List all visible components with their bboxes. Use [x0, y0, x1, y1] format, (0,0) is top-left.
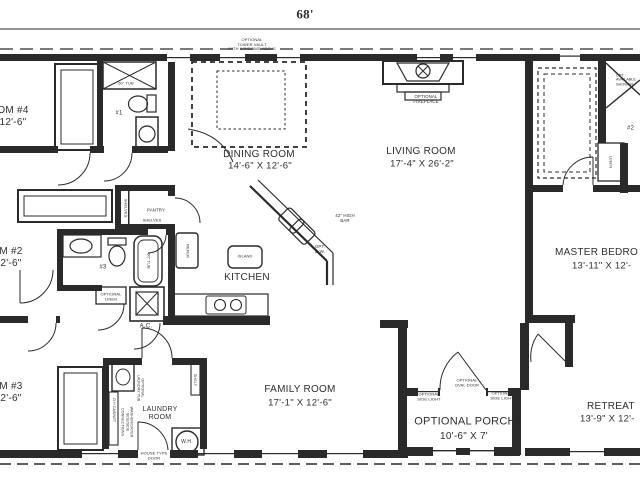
dining-vault-outline [192, 62, 306, 147]
bath3-toilet [108, 238, 126, 266]
bedroom4-closet [55, 64, 99, 150]
label-island: ISLAND [237, 255, 252, 260]
dims-family-room: 17'-1" X 12'-6" [268, 397, 332, 408]
ac-closet [130, 287, 164, 321]
label-bath2: #2 [627, 125, 634, 132]
bar-note: 42" HIGH BAR [335, 213, 354, 223]
label-oh-cabinet: O.H CABINET [112, 398, 116, 422]
fireplace-note: OPTIONAL FIREPLACE [413, 94, 438, 104]
label-kitchen: KITCHEN [224, 272, 270, 284]
dims-master-bedroom: 13'-11" X 12'- [572, 260, 631, 271]
label-laundry-room: LAUNDRY ROOM [142, 406, 177, 423]
label-retreat: RETREAT [587, 401, 635, 413]
dining-tray-outline [217, 71, 285, 129]
label-tub1: 60" TUB [118, 82, 134, 87]
dims-dining-room: 14'-6" X 12'-6" [228, 160, 292, 171]
bath1-shower [136, 117, 158, 149]
label-family-room: FAMILY ROOM [264, 384, 335, 396]
label-bedroom4: OM #4 12'-6" [0, 105, 29, 129]
bar-sink [278, 207, 317, 246]
label-refrigerator: REFER [185, 244, 190, 258]
label-shelves-side: SHELVES [123, 199, 128, 218]
label-porch: OPTIONAL PORCH [414, 416, 516, 429]
label-linen: LINEN [608, 156, 613, 168]
label-bath1: #1 [115, 110, 122, 117]
dims-porch: 10'-6" X 7' [440, 431, 488, 443]
label-laundry-tub: OPTIONAL LAUNDRY TUB [136, 375, 145, 402]
label-shelves-bottom: SHELVES [143, 219, 162, 224]
side-light-left-note: OPTIONAL SIDE LIGHT [417, 392, 440, 401]
kitchen-counter [172, 294, 268, 316]
bedroom2-closet [18, 190, 112, 222]
label-bedroom3: M #3 2'-6" [0, 381, 23, 405]
overall-width-dimension: 68' [296, 6, 313, 21]
corner-shower-note: OPT. AVAILABLE SHOWER [616, 74, 636, 87]
label-ac: A.C. [140, 323, 153, 330]
label-water-heater: W.H. [181, 440, 193, 446]
floor-plan: 68' OPTIONAL TOWER VAULT WITH WINDOWS AB… [0, 0, 640, 480]
master-hall-outline [538, 68, 596, 178]
optional-linen-note: OPTIONAL LINEN [100, 292, 121, 301]
oval-door-note: OPTIONAL OVAL DOOR [455, 378, 479, 387]
label-shelf: SHELF [193, 374, 197, 386]
label-dining-room: DINING ROOM [223, 149, 295, 161]
side-light-right-note: OPTIONAL SIDE LIGHT [490, 391, 513, 400]
laundry-tub-fixture [112, 364, 134, 391]
dims-living-room: 17'-4" X 26'-2" [390, 158, 454, 169]
label-master-bedroom: MASTER BEDRO [555, 247, 638, 259]
label-tub3: 60" TUB [146, 253, 151, 269]
label-bath3: #3 [99, 264, 106, 271]
bath1-toilet [129, 95, 157, 112]
dims-retreat: 13'-9" X 12'- [580, 413, 635, 424]
house-type-door-note: HOUSE TYPE DOOR [141, 451, 168, 460]
label-bedroom2: M #2 2'-6" [0, 246, 23, 270]
label-wd-connections: WASHER/DRYER SIDE/SIDE CONNECTIONS [121, 407, 134, 438]
bedroom3-closet [58, 367, 103, 450]
bath3-sink [63, 235, 101, 257]
tower-vault-note: OPTIONAL TOWER VAULT WITH WINDOWS ABOVE [228, 38, 276, 52]
label-living-room: LIVING ROOM [386, 146, 455, 158]
porch-rail [407, 447, 520, 456]
label-pantry: PANTRY [147, 207, 165, 212]
dishwasher-note: OPT. D.W. [315, 244, 325, 254]
